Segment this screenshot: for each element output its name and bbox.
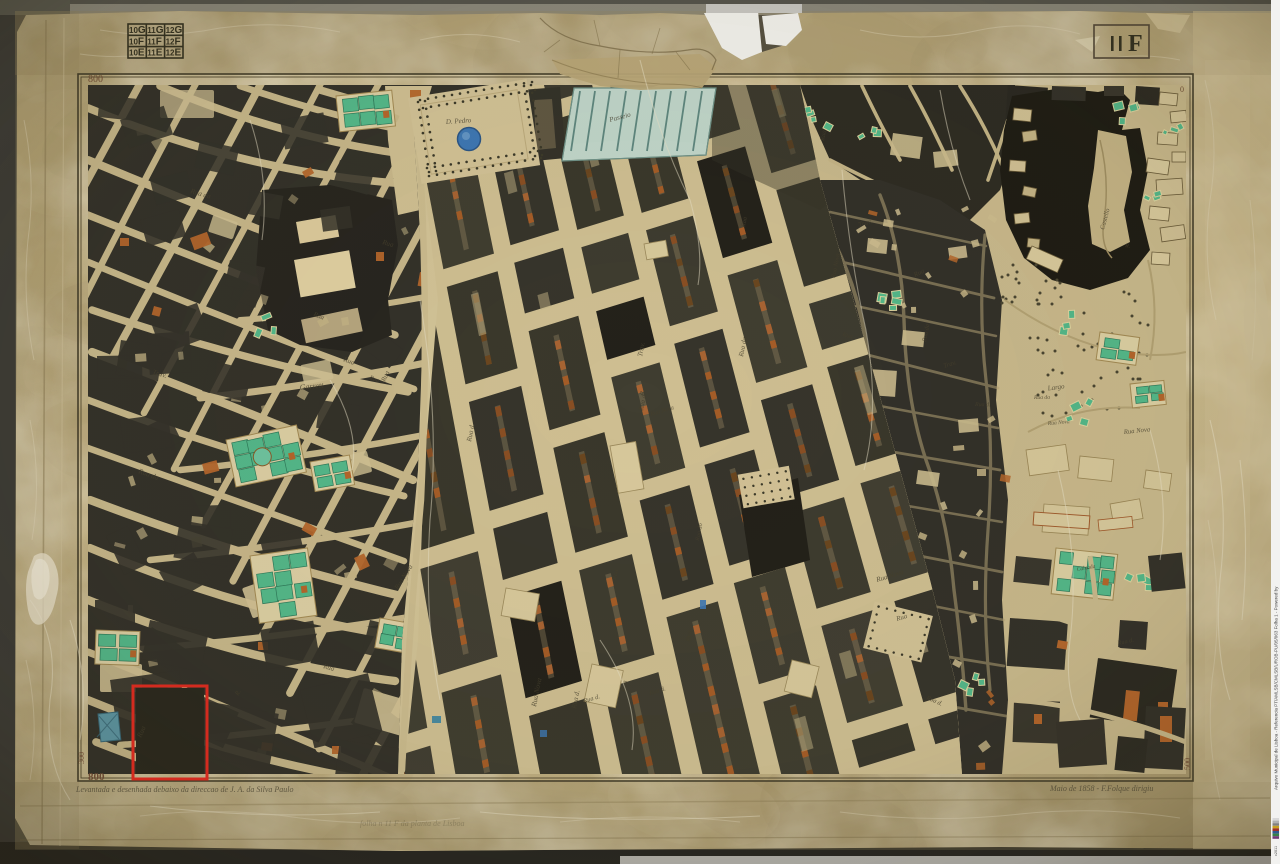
svg-text:11G: 11G <box>147 25 163 36</box>
svg-text:F: F <box>1128 31 1143 57</box>
svg-text:folha n 11 F da planta de Lisb: folha n 11 F da planta de Lisboa <box>360 819 465 828</box>
svg-text:11E: 11E <box>147 48 162 59</box>
svg-text:10G: 10G <box>129 25 146 36</box>
svg-text:Levantada e desenhada debaixo: Levantada e desenhada debaixo da direcca… <box>75 785 294 794</box>
svg-text:11F: 11F <box>147 36 162 47</box>
svg-text:10E: 10E <box>129 48 145 59</box>
svg-text:500: 500 <box>1183 758 1192 770</box>
svg-text:300: 300 <box>77 752 86 764</box>
svg-text:c2011: c2011 <box>1274 846 1278 856</box>
svg-text:12E: 12E <box>166 48 182 59</box>
svg-text:12F: 12F <box>166 36 181 47</box>
svg-text:800: 800 <box>88 74 103 85</box>
svg-text:800: 800 <box>88 771 105 783</box>
svg-text:10F: 10F <box>129 36 144 47</box>
svg-text:12G: 12G <box>166 25 183 36</box>
svg-text:0: 0 <box>1180 85 1184 94</box>
svg-text:Arquivo Municipal de Lisboa -: Arquivo Municipal de Lisboa - Referencia… <box>1274 586 1279 790</box>
svg-text:Maio de 1858 - F.Folque dirig: Maio de 1858 - F.Folque dirigiu <box>1049 784 1153 793</box>
